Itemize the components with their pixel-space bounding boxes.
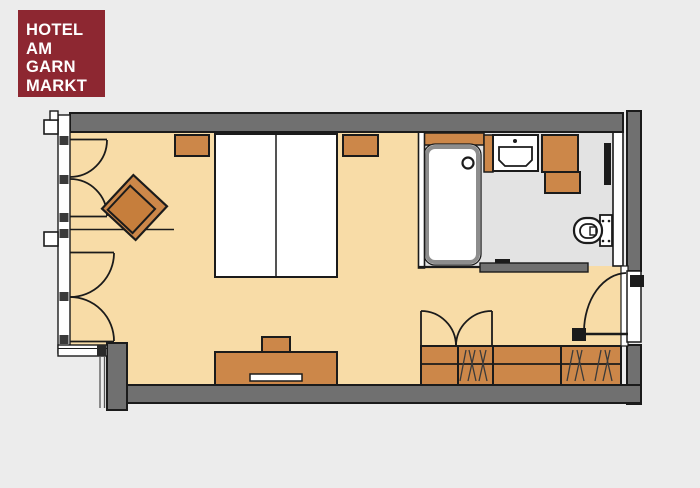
awning-bracket (44, 232, 58, 246)
vanity-cabinet (542, 135, 580, 193)
wardrobe (421, 346, 621, 385)
floorplan-drawing (0, 0, 700, 488)
floorplan-page: HOTEL AM GARN MARKT (0, 0, 700, 488)
faucet-icon (513, 139, 517, 143)
washbasin (484, 135, 538, 172)
bathtub (424, 144, 481, 265)
double-bed (215, 134, 337, 277)
tv (262, 337, 290, 353)
drain-icon (463, 158, 474, 169)
tub-shelf (422, 133, 484, 145)
wall-toilet (574, 215, 612, 246)
bottom-wall (127, 385, 641, 403)
door-stop (630, 275, 644, 287)
top-wall (70, 113, 623, 132)
bathroom-right-wall (613, 132, 623, 266)
bathroom-partition-wall (419, 132, 425, 268)
nightstand-left (175, 135, 209, 156)
towel-radiator (604, 143, 611, 185)
awning-bracket (44, 120, 58, 134)
nightstand-right (343, 135, 378, 156)
corner-pillar (107, 343, 127, 410)
right-wall-upper (627, 111, 641, 271)
